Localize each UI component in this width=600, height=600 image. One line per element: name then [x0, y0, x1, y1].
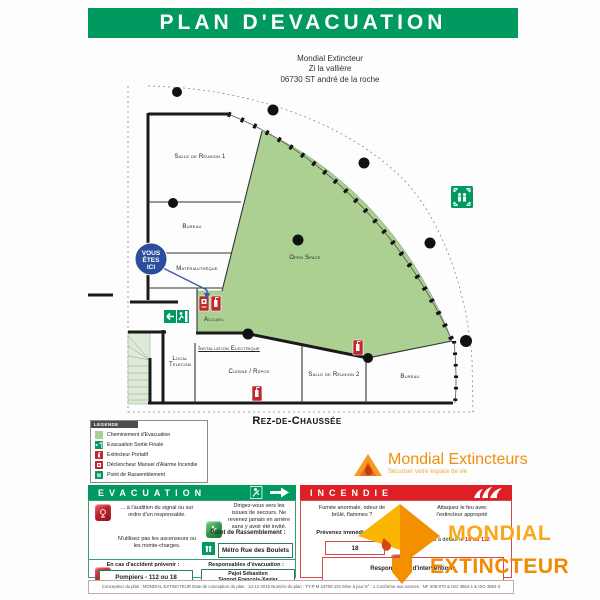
you-are-here-line: ICI: [147, 264, 156, 271]
legend-label: Evacuation Sortie Finale: [107, 442, 163, 448]
assembly-point-icon: [451, 186, 473, 208]
you-are-here-line: VOUS: [142, 250, 161, 257]
legend-item: Evacuation Sortie Finale: [95, 441, 163, 449]
evacuation-no-elevator-text: N'utilisez pas les ascenseurs ou les mon…: [115, 536, 199, 550]
room-label-local-telecom: Local Telecom: [169, 356, 191, 368]
room-label-salle-reunion-2: Salle de Réunion 2: [308, 372, 359, 378]
legend-item: Cheminement d'Evacuation: [95, 431, 170, 439]
responsible-label: Responsables d'évacuation :: [199, 562, 293, 569]
legend-title: LEGENDE: [91, 421, 138, 428]
brand-flame-icon: [352, 452, 384, 480]
brand-logo: Mondial Extincteurs Sécuriser votre espa…: [352, 452, 528, 480]
legend-item: Déclencheur Manuel d'Alarme Incendie: [95, 461, 197, 469]
watermark-line2: EXTINCTEUR: [430, 555, 569, 579]
flames-icon: [474, 487, 504, 499]
extinguisher-icon: [353, 340, 363, 355]
legend-label: Point de Rassemblement: [107, 472, 165, 478]
room-label-open-space: Open Space: [289, 255, 320, 261]
room-label-installation-electrique: Installation Electrique: [198, 346, 260, 352]
you-are-here-line: ÊTES: [143, 255, 161, 264]
evacuation-header: EVACUATION: [88, 485, 296, 500]
accident-label: En cas d'accident prévenir :: [95, 562, 191, 569]
extinguisher-icon: [95, 451, 103, 459]
evacuation-plan-page: PLAN D'EVACUATION Mondial Extincteur Zi …: [0, 0, 600, 600]
brand-tagline: Sécuriser votre espace de vie: [388, 469, 528, 475]
room-label-cuisine-repos: Cuisine / Repos: [228, 369, 269, 375]
extinguisher-icon: [211, 296, 221, 311]
legend-label: Déclencheur Manuel d'Alarme Incendie: [107, 462, 197, 468]
staircase: [128, 333, 150, 404]
legend-label: Cheminement d'Evacuation: [107, 432, 170, 438]
legend-box: LEGENDE Cheminement d'Evacuation Evacuat…: [90, 420, 208, 483]
divider: [89, 559, 295, 560]
manual-alarm-icon: [95, 461, 103, 469]
watermark-line1: MONDIAL: [448, 522, 552, 546]
incendie-title: INCENDIE: [310, 488, 474, 498]
brand-name: Mondial Extincteurs: [388, 452, 528, 468]
final-exit-icon: [95, 441, 103, 449]
assembly-label: Point de Rassemblement :: [204, 530, 292, 536]
assembly-point-icon: [202, 542, 215, 555]
assembly-point-icon: [95, 471, 103, 479]
plan-footer: Concepteur du plan : MONDIAL EXTINCTEUR …: [88, 580, 514, 594]
assembly-value-box: Métro Rue des Boulets: [218, 543, 293, 558]
room-label-materiautheque: Matériauthèque: [176, 266, 218, 272]
legend-item: Extincteur Portatif: [95, 451, 148, 459]
evacuation-area: [197, 131, 452, 357]
alarm-signal-icon: [95, 504, 111, 521]
floor-label: Rez-de-Chaussée: [252, 415, 341, 427]
room-label-bureau-2: Bureau: [400, 374, 419, 380]
extinguisher-icon: [252, 386, 262, 401]
evacuation-direct-text: Dirigez-vous vers les issues de secours.…: [226, 503, 292, 531]
legend-item: Point de Rassemblement: [95, 471, 165, 479]
room-label-bureau-1: Bureau: [182, 224, 201, 230]
room-label-accueil: Accueil: [204, 317, 224, 323]
evacuation-path-swatch: [95, 431, 103, 439]
legend-label: Extincteur Portatif: [107, 452, 148, 458]
evacuation-title: EVACUATION: [98, 488, 250, 498]
room-label-salle-reunion-1: Salle de Réunion 1: [174, 154, 225, 160]
evacuation-signal-text: ... à l'audition du signal ou sur ordre …: [115, 505, 199, 519]
final-exit-icon: [164, 310, 189, 323]
exit-run-arrow-icon: [250, 486, 290, 499]
